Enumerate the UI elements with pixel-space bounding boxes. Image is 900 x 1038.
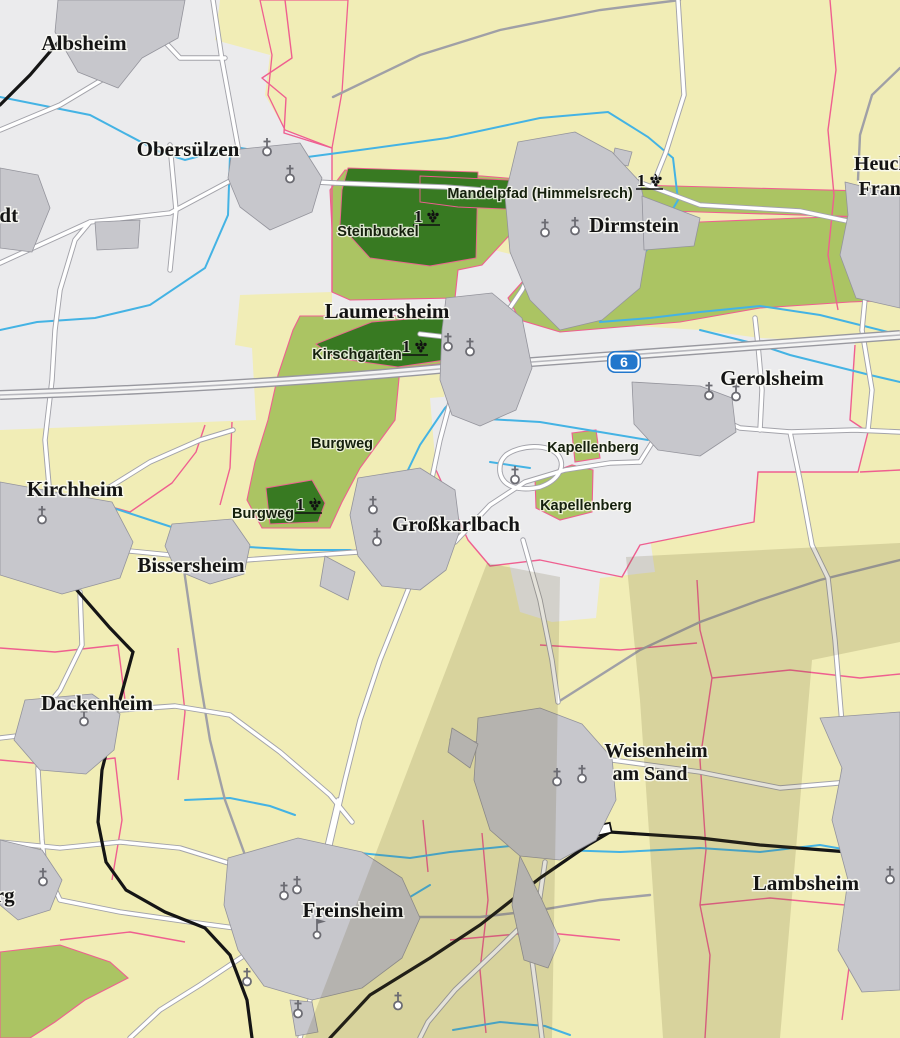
town-label-heuchelheim-line1: Heuchelheim (854, 153, 900, 175)
town-label-lambsheim: Lambsheim (753, 871, 860, 895)
town-label-partial-southwest: erg (0, 883, 15, 907)
vineyard-label-mandelpfad: Mandelpfad (Himmelsrech) (447, 186, 632, 202)
town-label-albsheim: Albsheim (41, 31, 127, 55)
map-canvas: 1 (0, 0, 900, 1038)
town-label-partial-west: tadt (0, 203, 18, 227)
town-label-weisenheim-line2: am Sand (612, 763, 687, 785)
town-label-gerolsheim: Gerolsheim (720, 366, 824, 390)
town-label-dackenheim: Dackenheim (41, 691, 154, 715)
town-label-laumersheim: Laumersheim (325, 299, 450, 323)
vineyard-label-burgweg: Burgweg (311, 436, 373, 452)
town-label-dirmstein: Dirmstein (589, 213, 679, 237)
vineyard-label-steinbuckel: Steinbuckel (337, 224, 418, 240)
vineyard-label-kirschgarten: Kirschgarten (312, 347, 401, 363)
wine-region-map: 1 (0, 0, 900, 1038)
vineyard-label-burgweg-premium: Burgweg (232, 506, 294, 522)
motorway-number: 6 (620, 354, 628, 370)
town-label-obersuelzen: Obersülzen (137, 137, 240, 161)
motorway-shield-a6: 6 (607, 351, 641, 373)
town-label-weisenheim-line1: Weisenheim (604, 740, 708, 762)
town-label-freinsheim: Freinsheim (302, 898, 404, 922)
vineyard-label-kapellenberg-upper: Kapellenberg (547, 440, 639, 456)
town-label-heuchelheim-line2: Frankenthal (859, 178, 900, 200)
town-label-grosskarlbach: Großkarlbach (392, 512, 520, 536)
vineyard-label-kapellenberg-lower: Kapellenberg (540, 498, 632, 514)
town-block (95, 220, 140, 250)
town-label-bissersheim: Bissersheim (137, 553, 245, 577)
town-label-kirchheim: Kirchheim (27, 477, 124, 501)
